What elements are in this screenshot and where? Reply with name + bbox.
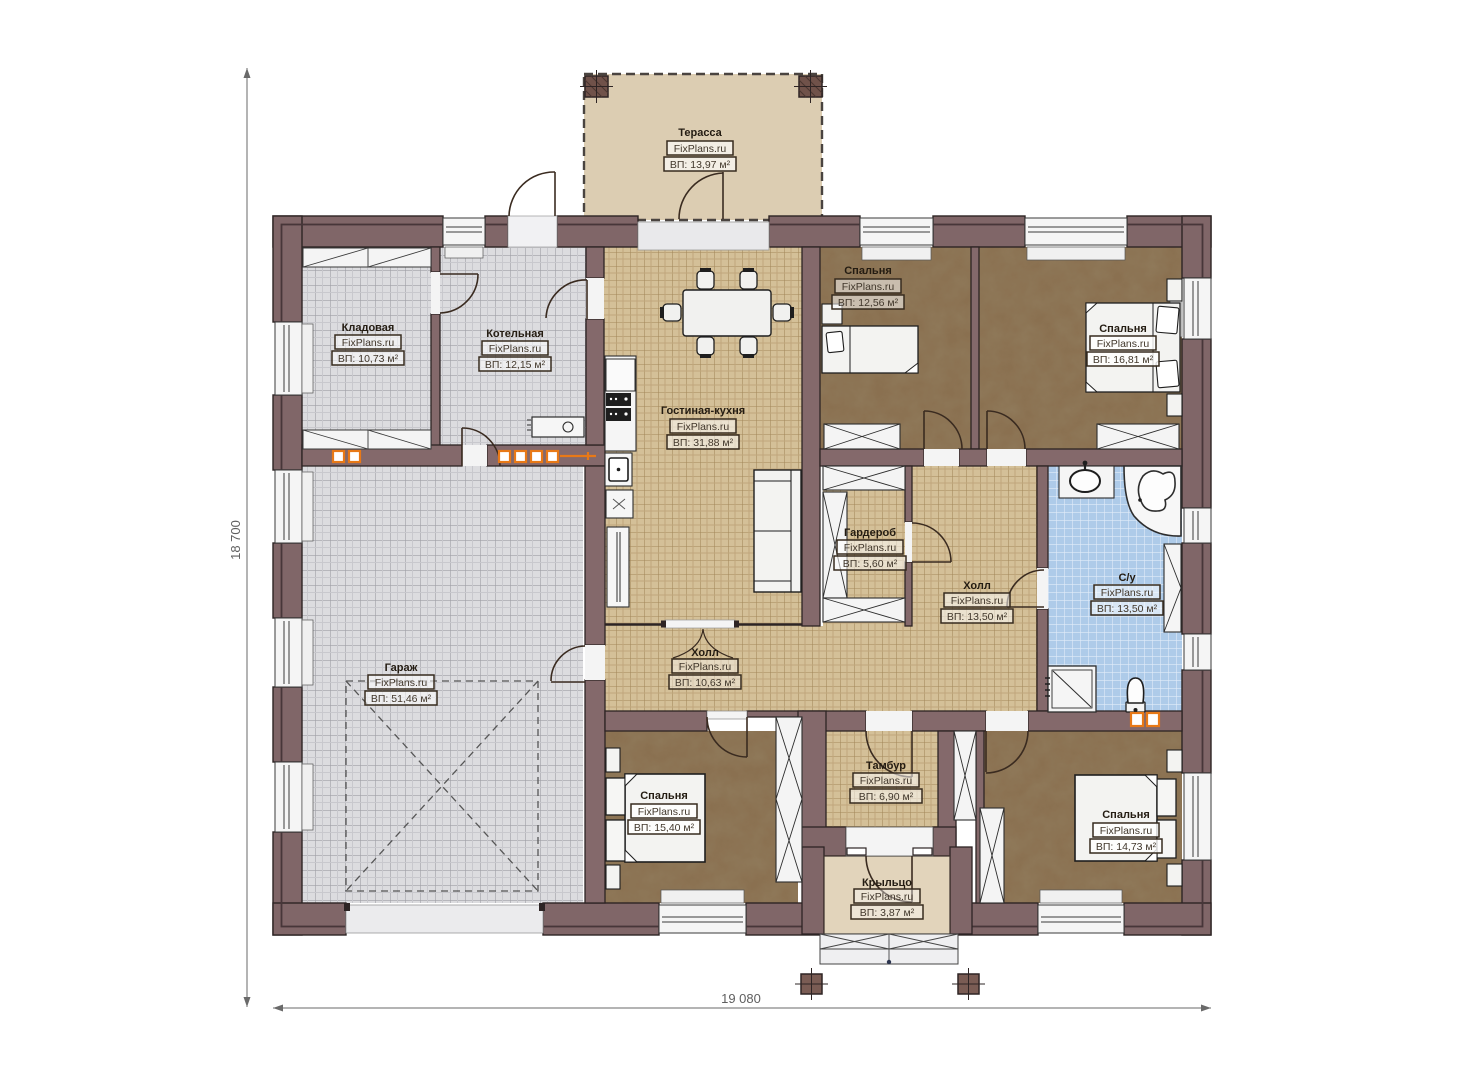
svg-text:FixPlans.ru: FixPlans.ru xyxy=(375,677,428,689)
svg-text:ВП: 13,97 м²: ВП: 13,97 м² xyxy=(670,159,731,171)
svg-text:Гараж: Гараж xyxy=(385,662,418,674)
svg-text:ВП: 3,87 м²: ВП: 3,87 м² xyxy=(860,907,915,919)
svg-text:ВП: 10,63 м²: ВП: 10,63 м² xyxy=(675,677,736,689)
svg-text:Спальня: Спальня xyxy=(1102,809,1150,821)
svg-text:FixPlans.ru: FixPlans.ru xyxy=(860,775,913,787)
svg-text:ВП: 15,40 м²: ВП: 15,40 м² xyxy=(634,822,695,834)
svg-text:ВП: 5,60 м²: ВП: 5,60 м² xyxy=(843,558,898,570)
svg-text:FixPlans.ru: FixPlans.ru xyxy=(861,891,914,903)
svg-text:ВП: 12,15 м²: ВП: 12,15 м² xyxy=(485,359,546,371)
svg-text:ВП: 13,50 м²: ВП: 13,50 м² xyxy=(947,611,1008,623)
svg-text:ВП: 12,56 м²: ВП: 12,56 м² xyxy=(838,297,899,309)
svg-text:Спальня: Спальня xyxy=(1099,323,1147,335)
svg-text:FixPlans.ru: FixPlans.ru xyxy=(638,806,691,818)
svg-text:FixPlans.ru: FixPlans.ru xyxy=(1101,587,1154,599)
svg-text:ВП: 14,73 м²: ВП: 14,73 м² xyxy=(1096,841,1157,853)
svg-text:FixPlans.ru: FixPlans.ru xyxy=(844,542,897,554)
svg-text:19 080: 19 080 xyxy=(721,991,761,1006)
svg-text:ВП: 10,73 м²: ВП: 10,73 м² xyxy=(338,353,399,365)
svg-text:18 700: 18 700 xyxy=(228,520,243,560)
svg-text:Холл: Холл xyxy=(691,647,719,659)
svg-text:Холл: Холл xyxy=(963,580,991,592)
svg-text:ВП: 6,90 м²: ВП: 6,90 м² xyxy=(859,791,914,803)
svg-text:FixPlans.ru: FixPlans.ru xyxy=(677,421,730,433)
svg-text:Котельная: Котельная xyxy=(486,328,544,340)
svg-text:Терасса: Терасса xyxy=(678,127,722,139)
svg-text:Тамбур: Тамбур xyxy=(866,760,906,772)
svg-text:Крыльцо: Крыльцо xyxy=(862,877,912,889)
svg-text:FixPlans.ru: FixPlans.ru xyxy=(951,595,1004,607)
svg-text:FixPlans.ru: FixPlans.ru xyxy=(489,343,542,355)
svg-text:ВП: 31,88 м²: ВП: 31,88 м² xyxy=(673,437,734,449)
svg-text:ВП: 13,50 м²: ВП: 13,50 м² xyxy=(1097,603,1158,615)
svg-text:С/у: С/у xyxy=(1118,572,1136,584)
svg-text:FixPlans.ru: FixPlans.ru xyxy=(842,281,895,293)
svg-text:FixPlans.ru: FixPlans.ru xyxy=(1100,825,1153,837)
svg-text:FixPlans.ru: FixPlans.ru xyxy=(342,337,395,349)
svg-text:ВП: 51,46 м²: ВП: 51,46 м² xyxy=(371,693,432,705)
svg-text:Гардероб: Гардероб xyxy=(844,527,896,539)
svg-text:Спальня: Спальня xyxy=(640,790,688,802)
svg-text:FixPlans.ru: FixPlans.ru xyxy=(679,661,732,673)
svg-text:Спальня: Спальня xyxy=(844,265,892,277)
svg-text:Гостиная-кухня: Гостиная-кухня xyxy=(661,405,745,417)
svg-text:FixPlans.ru: FixPlans.ru xyxy=(1097,338,1150,350)
svg-text:Кладовая: Кладовая xyxy=(342,322,395,334)
svg-text:ВП: 16,81 м²: ВП: 16,81 м² xyxy=(1093,354,1154,366)
svg-text:FixPlans.ru: FixPlans.ru xyxy=(674,143,727,155)
